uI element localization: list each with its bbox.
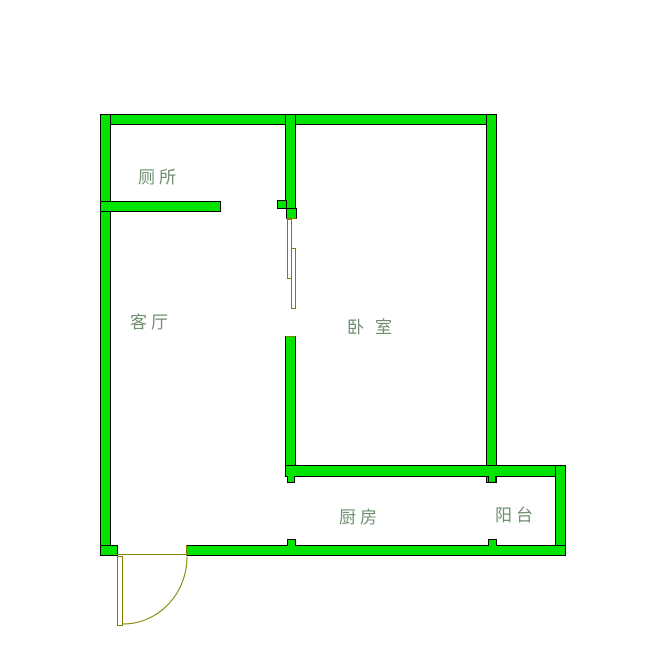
sliding-door-panel-b (291, 248, 296, 309)
wall-stub-below-divider (287, 476, 295, 483)
room-label-toilet: 厕所 (138, 169, 180, 188)
wall-right (486, 114, 497, 483)
room-label-bedroom: 卧室 (347, 319, 403, 338)
wall-top (100, 114, 497, 125)
wall-bump-divider-bottom (287, 539, 296, 546)
wall-bottom-main (186, 545, 566, 556)
entry-door-swing-arc (100, 540, 220, 640)
wall-divider-lower (285, 336, 296, 477)
room-label-balcony: 阳台 (495, 507, 537, 526)
wall-toilet-bottom (100, 201, 221, 212)
room-label-living-room: 客厅 (130, 314, 172, 333)
room-label-kitchen: 厨房 (339, 509, 381, 528)
wall-divider-upper (285, 114, 296, 209)
door-jamb-upper (286, 208, 297, 219)
wall-bump-right-wall-bottom (488, 539, 497, 546)
floor-plan: 厕所 客厅 卧室 厨房 阳台 (0, 0, 664, 659)
wall-left (100, 114, 111, 556)
wall-kitchen-top (285, 465, 566, 477)
wall-stub-below-right-wall (488, 476, 496, 483)
wall-balcony-right (555, 465, 566, 556)
